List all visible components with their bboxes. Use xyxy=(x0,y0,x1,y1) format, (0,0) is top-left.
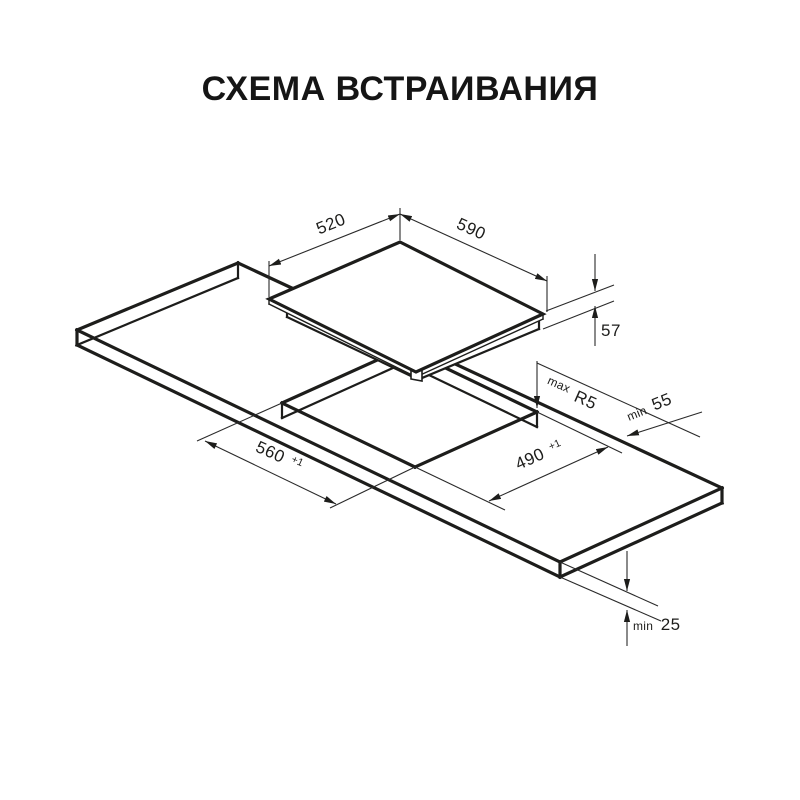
extension-line xyxy=(560,577,661,621)
dimension-label: min 25 xyxy=(633,615,681,634)
dimension-label: 520 xyxy=(314,209,349,238)
installation-diagram: 520 590 57 max R5 xyxy=(0,0,800,800)
page: { "title": "СХЕМА ВСТРАИВАНИЯ", "colors"… xyxy=(0,0,800,800)
dimension-cooktop-height: 57 xyxy=(543,254,621,346)
dimension-label: 57 xyxy=(601,321,621,340)
dimension-label: min 55 xyxy=(623,389,674,424)
dimension-label: 590 xyxy=(454,214,489,244)
extension-line xyxy=(546,285,614,311)
